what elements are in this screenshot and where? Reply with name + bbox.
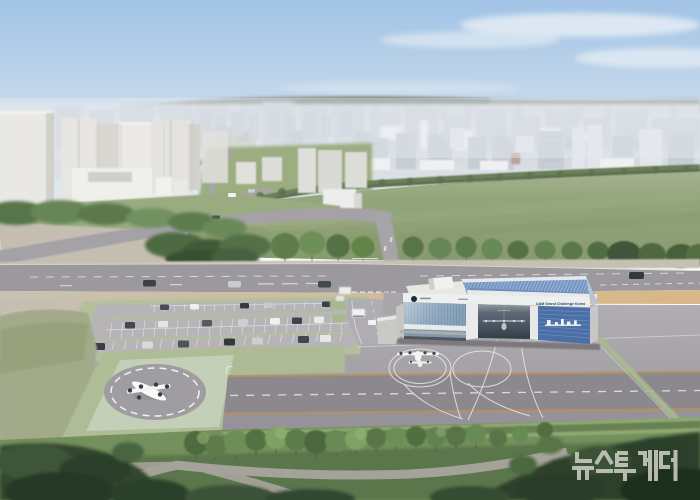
svg-text:UAM Grand Challenge Korea: UAM Grand Challenge Korea xyxy=(536,302,586,306)
